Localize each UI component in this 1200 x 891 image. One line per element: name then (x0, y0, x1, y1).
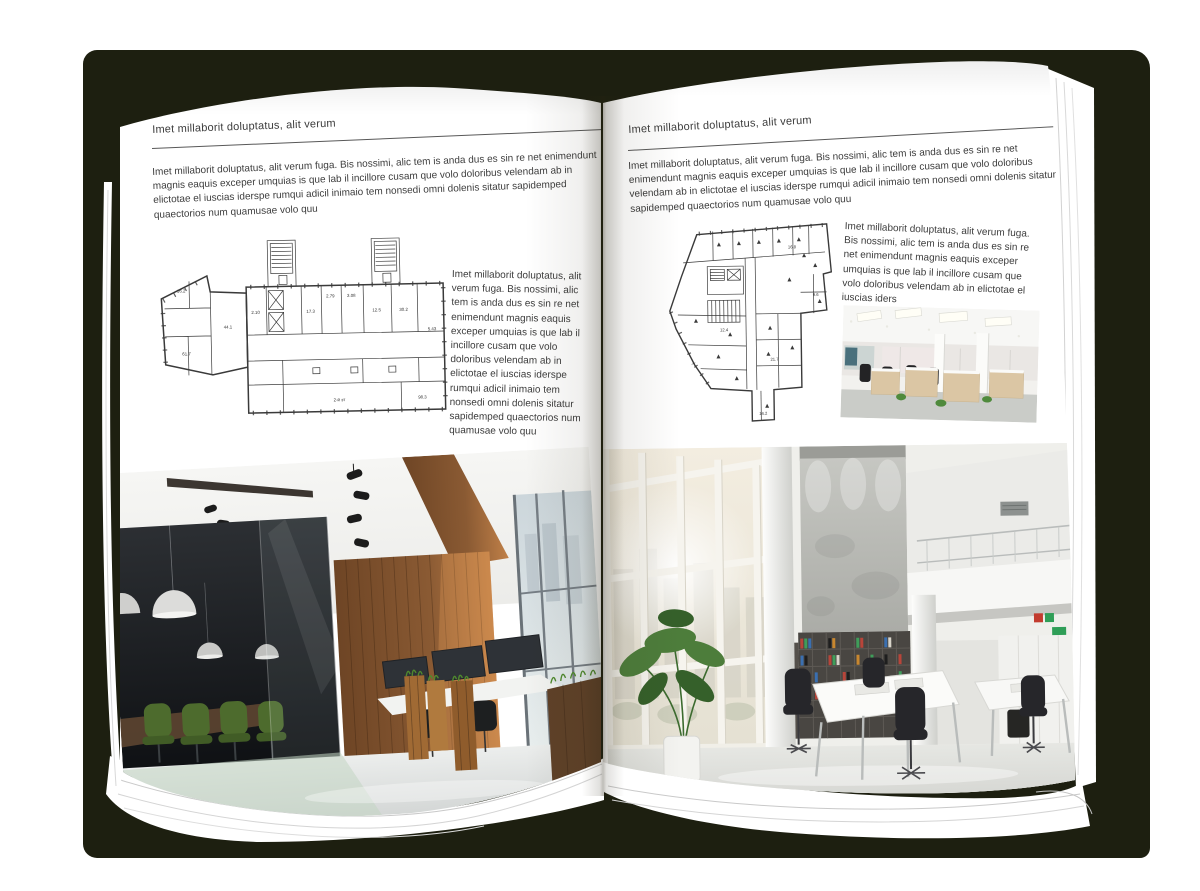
photo-small-office (840, 305, 1039, 422)
interior-walls (164, 276, 446, 415)
window-ticks (162, 273, 446, 415)
stair-towers (267, 238, 400, 287)
outer-walls (669, 224, 834, 422)
outer-walls (161, 271, 446, 415)
room-label: 12.5 (372, 307, 381, 312)
glass-facade (604, 447, 788, 760)
room-label: 2.10 (251, 310, 260, 315)
room-label: 9.6 (813, 292, 820, 297)
room-label: 30.2 (399, 307, 408, 312)
floor-plan-left: 16.2 44.1 61.7 2.10 17.3 2.79 3.08 12.5 … (150, 231, 454, 427)
exit-sign (1052, 627, 1066, 635)
room-label: 44.1 (224, 324, 233, 329)
room-label: 16.8 (788, 244, 797, 249)
book-mockup-scene: Imet millaborit doluptatus, alit verum I… (0, 0, 1200, 891)
floor-label: 2-й эт (334, 397, 346, 402)
right-side-paragraph: Imet millaborit doluptatus, alit verum f… (841, 220, 1044, 313)
room-label: 98.3 (418, 394, 427, 399)
page-left: Imet millaborit doluptatus, alit verum I… (114, 78, 604, 818)
room-label: 2.79 (326, 293, 335, 298)
room-label: 3.08 (347, 293, 356, 298)
room-label: 16.2 (177, 288, 186, 293)
room-label: 17.3 (306, 309, 315, 314)
right-header-title: Imet millaborit doluptatus, alit verum (628, 114, 812, 136)
room-label: 61.7 (182, 351, 191, 356)
left-side-page-stack (102, 182, 122, 792)
room-label: 14.2 (759, 411, 768, 416)
room-label: 5.43 (428, 326, 437, 331)
page-right: Imet millaborit doluptatus, alit verum I… (600, 58, 1100, 818)
left-side-paragraph: Imet millaborit doluptatus, alit verum f… (449, 268, 585, 441)
safety-sign-red (1034, 613, 1043, 622)
meeting-room-glass-wall (106, 514, 347, 780)
photo-atrium-office (604, 443, 1081, 802)
left-intro-paragraph: Imet millaborit doluptatus, alit verum f… (152, 149, 606, 223)
room-label: 21.7 (770, 357, 779, 362)
right-intro-paragraph: Imet millaborit doluptatus, alit verum f… (628, 140, 1070, 217)
room-label: 12.4 (720, 327, 729, 332)
safety-sign-green (1045, 613, 1054, 622)
room-number-labels: 16.2 44.1 61.7 2.10 17.3 2.79 3.08 12.5 … (177, 283, 438, 405)
concrete-feature-wall (800, 445, 909, 632)
left-header-title: Imet millaborit doluptatus, alit verum (152, 118, 336, 136)
photo-loft-office (106, 447, 608, 829)
floor-plan-right: 16.8 12.4 21.7 9.6 14.2 (647, 217, 850, 430)
door-marks (693, 237, 823, 409)
